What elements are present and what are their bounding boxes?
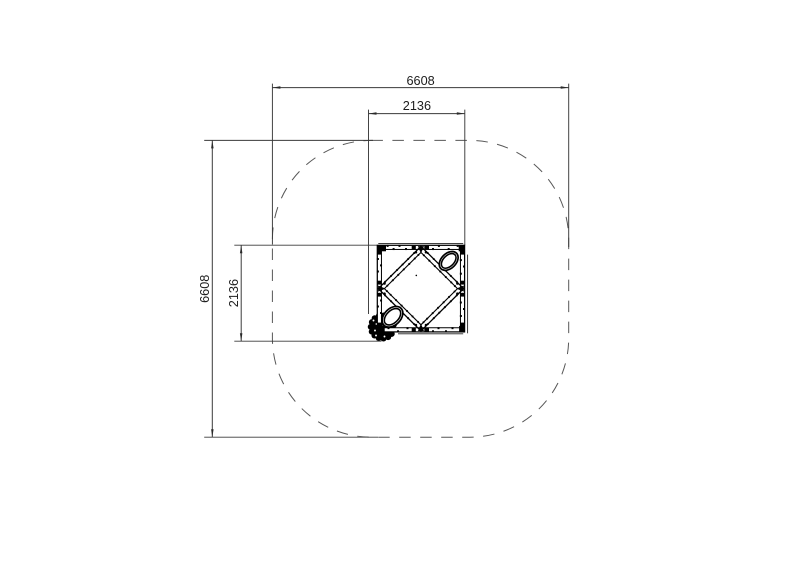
svg-text:6608: 6608 [406, 74, 434, 88]
svg-text:2136: 2136 [227, 279, 241, 307]
svg-text:2136: 2136 [403, 99, 431, 113]
svg-text:6608: 6608 [198, 275, 212, 303]
